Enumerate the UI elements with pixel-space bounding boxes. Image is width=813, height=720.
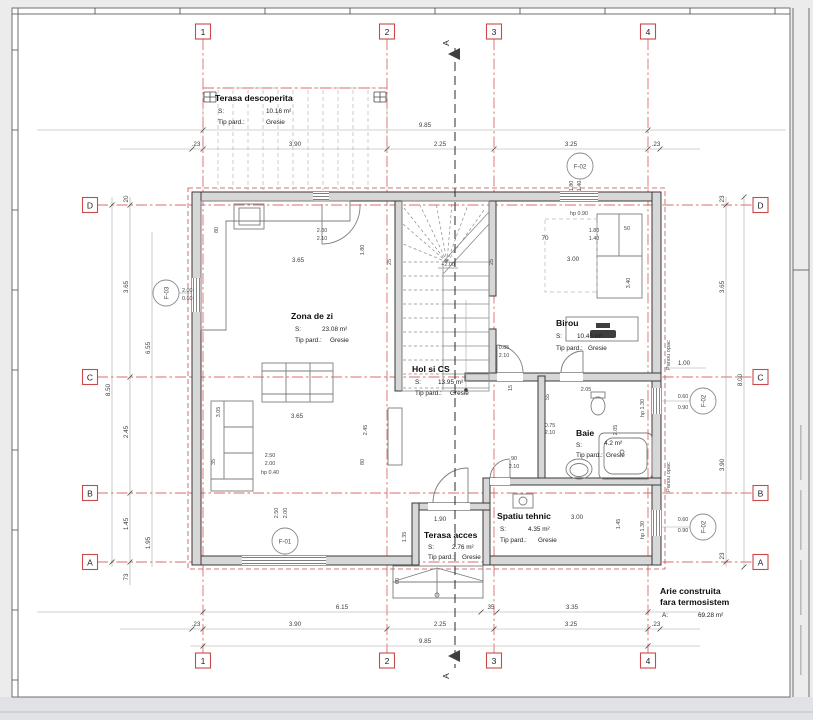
- room-floor: Gresie: [606, 452, 625, 459]
- dim: 1.00: [678, 360, 691, 367]
- dim: 1.40: [589, 236, 600, 242]
- dim: 2.05: [581, 387, 592, 393]
- section-label-top: A: [441, 40, 451, 46]
- room-tip-label: Tip pard.:: [576, 452, 603, 459]
- room-tip-label: Tip pard.:: [428, 554, 455, 561]
- dim: .23: [652, 141, 661, 148]
- dim: 55: [545, 394, 551, 400]
- grid-col-label: 2: [385, 27, 390, 37]
- marker-label: F-02: [574, 165, 587, 171]
- dim: 15: [508, 385, 514, 391]
- dim: 3.25: [565, 141, 578, 148]
- grid-row-label: B: [758, 489, 764, 499]
- room-area: 4.2 m²: [604, 440, 622, 447]
- dim: 20: [123, 195, 130, 203]
- room-s-label: S:: [428, 544, 434, 551]
- dim: 2.25: [434, 621, 447, 628]
- summary-line1: Arie construita: [660, 586, 721, 596]
- room-area: 10.16 m²: [266, 108, 291, 115]
- dim: 1.90: [434, 516, 447, 523]
- dim: 3.05: [216, 407, 222, 418]
- dim: 2.00: [283, 508, 289, 519]
- grid-col-label: 1: [201, 656, 206, 666]
- dim: .23: [192, 141, 201, 148]
- room-tip-label: Tip pard.:: [500, 537, 527, 544]
- dim: 80: [214, 227, 220, 233]
- dim: 3.40: [626, 278, 632, 289]
- dim-hp040: hp 0.40: [261, 470, 279, 476]
- dim: 25: [489, 259, 495, 265]
- room-tip-label: Tip pard.:: [218, 119, 245, 126]
- dim: 3.00: [567, 256, 580, 263]
- dim: 60: [395, 578, 401, 584]
- marker-label: F-03: [165, 286, 171, 299]
- stair-level-label: +2.00: [441, 262, 455, 268]
- dim: 23: [719, 552, 726, 560]
- room-s-label: S:: [556, 333, 562, 340]
- dim: .23: [192, 621, 201, 628]
- dim: 0.60: [182, 296, 193, 302]
- dim: 23: [719, 195, 726, 203]
- dim: 3.65: [719, 280, 726, 293]
- dim: 1.45: [123, 517, 130, 530]
- floor-plan-drawing: 9.85 .23 3.90 2.25 3.25 .23 6.15 35 3.35…: [0, 0, 813, 720]
- room-name: Baie: [576, 428, 594, 438]
- dim: 0.60: [678, 517, 689, 523]
- dim: 2.25: [434, 141, 447, 148]
- grid-col-label: 2: [385, 656, 390, 666]
- dim: 1.35: [402, 532, 408, 543]
- dim: 3.35: [566, 604, 579, 611]
- grid-col-label: 4: [646, 27, 651, 37]
- room-tip-label: Tip pard.:: [295, 337, 322, 344]
- grid-row-label: B: [87, 489, 93, 499]
- dim: 50: [624, 226, 630, 232]
- dim: 2.50: [265, 453, 276, 459]
- room-label-terasa-acces: Terasa acces S: 2.76 m² Tip pard.: Gresi…: [424, 530, 481, 561]
- dim: 3.65: [292, 257, 305, 264]
- grid-row-label: C: [87, 373, 93, 383]
- floor-plan-viewport: 9.85 .23 3.90 2.25 3.25 .23 6.15 35 3.35…: [0, 0, 813, 720]
- dim: 3.90: [289, 141, 302, 148]
- grid-row-label: A: [758, 558, 764, 568]
- dim: 2.45: [123, 425, 130, 438]
- dim: 3.25: [565, 621, 578, 628]
- dim: 70: [541, 235, 549, 242]
- room-floor: Gresie: [538, 537, 557, 544]
- panou-opac-label: Panou opac: [666, 462, 672, 492]
- dim: 0.75: [545, 423, 556, 429]
- dim: 1.80: [360, 245, 366, 256]
- room-floor: Gresie: [330, 337, 349, 344]
- desk-monitor: [596, 323, 610, 328]
- dim: .23: [652, 621, 661, 628]
- dim: 1.45: [616, 519, 622, 530]
- dim: 2.50: [274, 508, 280, 519]
- dim: 1.80: [589, 228, 600, 234]
- room-area: 4.35 m²: [528, 526, 550, 533]
- room-s-label: S:: [576, 442, 582, 449]
- room-floor: Gresie: [450, 390, 469, 397]
- grid-col-label: 1: [201, 27, 206, 37]
- room-name: Spatiu tehnic: [497, 511, 551, 521]
- room-name: Terasa descoperita: [215, 93, 293, 103]
- dim-hp090: hp 0.90: [570, 211, 588, 217]
- dim: 2.10: [509, 464, 520, 470]
- summary-value: 69.28 m²: [698, 612, 723, 619]
- grid-row-label: D: [757, 201, 763, 211]
- grid-row-label: D: [87, 201, 93, 211]
- grid-row-label: C: [757, 373, 763, 383]
- room-name: Zona de zi: [291, 311, 333, 321]
- room-name: Hol si CS: [412, 364, 450, 374]
- marker-label: F-02: [702, 520, 708, 533]
- room-area: 23.08 m²: [322, 326, 347, 333]
- room-floor: Gresie: [266, 119, 285, 126]
- dim: 1.95: [145, 536, 152, 549]
- dim: 90: [511, 456, 517, 462]
- room-floor: Gresie: [462, 554, 481, 561]
- panou-opac-label: Panou opac: [666, 340, 672, 370]
- dim: 0.90: [678, 528, 689, 534]
- dim: 73: [123, 573, 130, 581]
- grid-row-label: A: [87, 558, 93, 568]
- dim: 6.55: [145, 341, 152, 354]
- dim: 0.85: [499, 345, 510, 351]
- room-name: Birou: [556, 318, 578, 328]
- room-s-label: S:: [500, 526, 506, 533]
- dim: 3.90: [719, 458, 726, 471]
- room-floor: Gresie: [588, 345, 607, 352]
- grid-col-label: 3: [492, 656, 497, 666]
- marker-label: F-01: [279, 540, 292, 546]
- room-s-label: S:: [295, 326, 301, 333]
- dim: 8.50: [105, 383, 112, 396]
- summary-a-label: A:: [662, 612, 668, 619]
- dim: 2.10: [317, 236, 328, 242]
- dim: 80: [360, 459, 366, 465]
- room-name: Terasa acces: [424, 530, 478, 540]
- dim: 3.90: [289, 621, 302, 628]
- grid-col-label: 4: [646, 656, 651, 666]
- dim: 2.10: [499, 353, 510, 359]
- grid-col-label: 3: [492, 27, 497, 37]
- room-tip-label: Tip pard.:: [415, 390, 442, 397]
- dim: 35: [487, 604, 495, 611]
- dim: 25: [387, 259, 393, 265]
- dim: 2.10: [545, 430, 556, 436]
- dim: 9.85: [419, 638, 432, 645]
- room-tip-label: Tip pard.:: [556, 345, 583, 352]
- dim: 6.15: [336, 604, 349, 611]
- dim: 2.00: [317, 228, 328, 234]
- dim: 0.90: [678, 405, 689, 411]
- dim-hp130: hp 1.30: [640, 521, 646, 539]
- marker-label: F-02: [702, 394, 708, 407]
- dim: 3.65: [123, 280, 130, 293]
- room-area: 10.45 m²: [577, 333, 602, 340]
- dim: 35: [211, 459, 217, 465]
- summary-line2: fara termosistem: [660, 597, 730, 607]
- dim-top-total: 9.85: [419, 122, 432, 129]
- dim: 0.60: [678, 394, 689, 400]
- dim-hp130: hp 1.30: [640, 399, 646, 417]
- section-label-bottom: A: [441, 673, 451, 679]
- dim: 2.00: [265, 461, 276, 467]
- room-s-label: S:: [415, 379, 421, 386]
- dim: 3.00: [571, 514, 584, 521]
- dim: 1.80: [569, 181, 575, 192]
- room-area: 13.95 m²: [438, 379, 463, 386]
- dim: 8.00: [737, 373, 744, 386]
- dim: 3.65: [291, 413, 304, 420]
- dim: 2.05: [613, 425, 619, 436]
- dim: 2.45: [363, 425, 369, 436]
- room-s-label: S:: [218, 108, 224, 115]
